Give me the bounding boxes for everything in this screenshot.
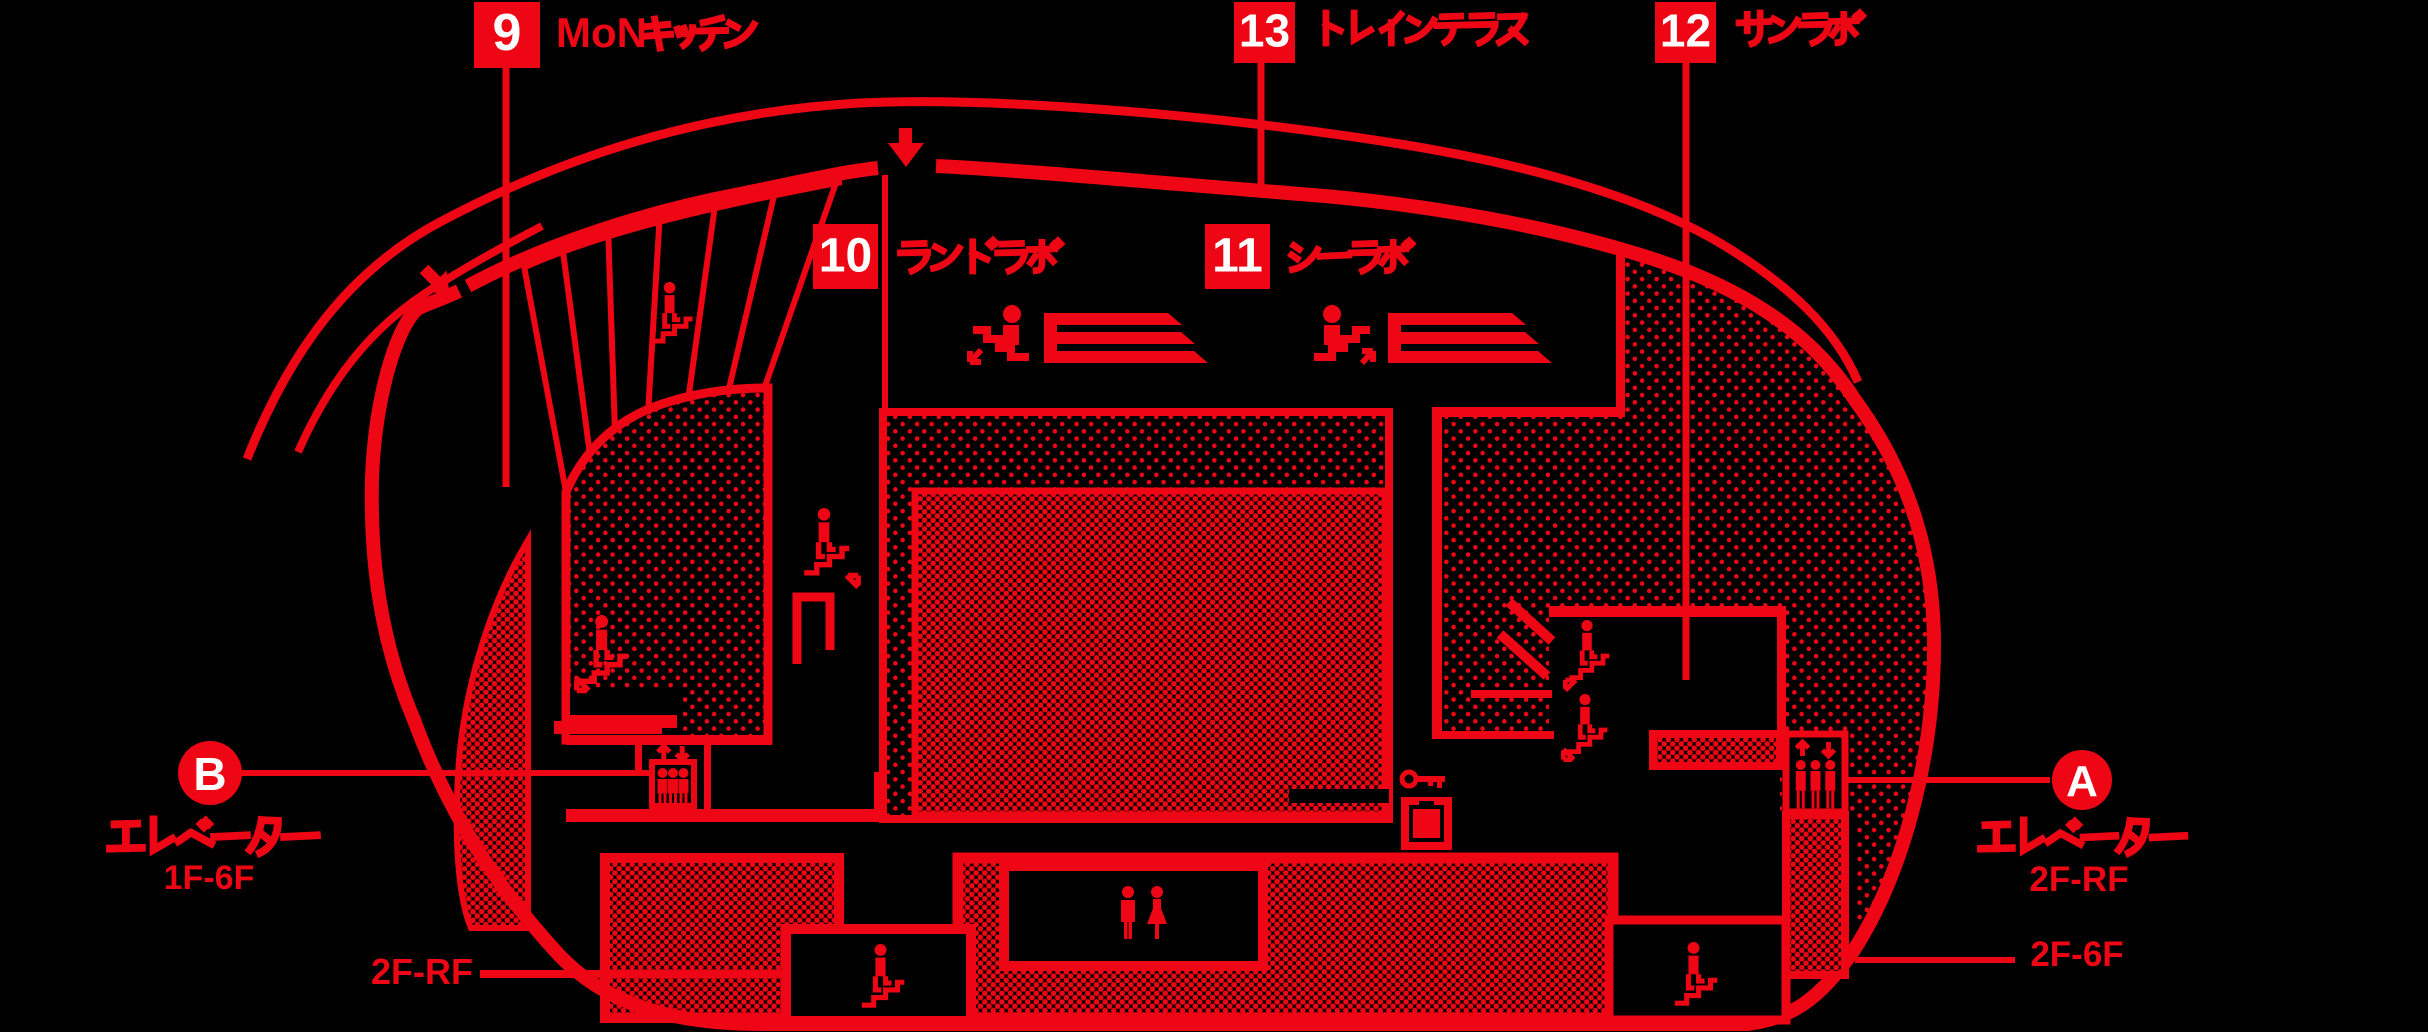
svg-text:13: 13 (1239, 5, 1290, 57)
svg-text:12: 12 (1660, 5, 1711, 57)
svg-text:2F-6F: 2F-6F (2030, 935, 2123, 974)
svg-text:A: A (2066, 757, 2098, 806)
svg-text:11: 11 (1212, 229, 1263, 282)
svg-text:MoN: MoN (556, 9, 647, 56)
svg-text:2F-RF: 2F-RF (2029, 860, 2128, 899)
svg-text:B: B (193, 748, 226, 800)
svg-text:10: 10 (819, 229, 872, 282)
svg-text:1F-6F: 1F-6F (164, 859, 255, 897)
svg-text:9: 9 (493, 4, 522, 62)
svg-text:2F-RF: 2F-RF (371, 951, 473, 992)
